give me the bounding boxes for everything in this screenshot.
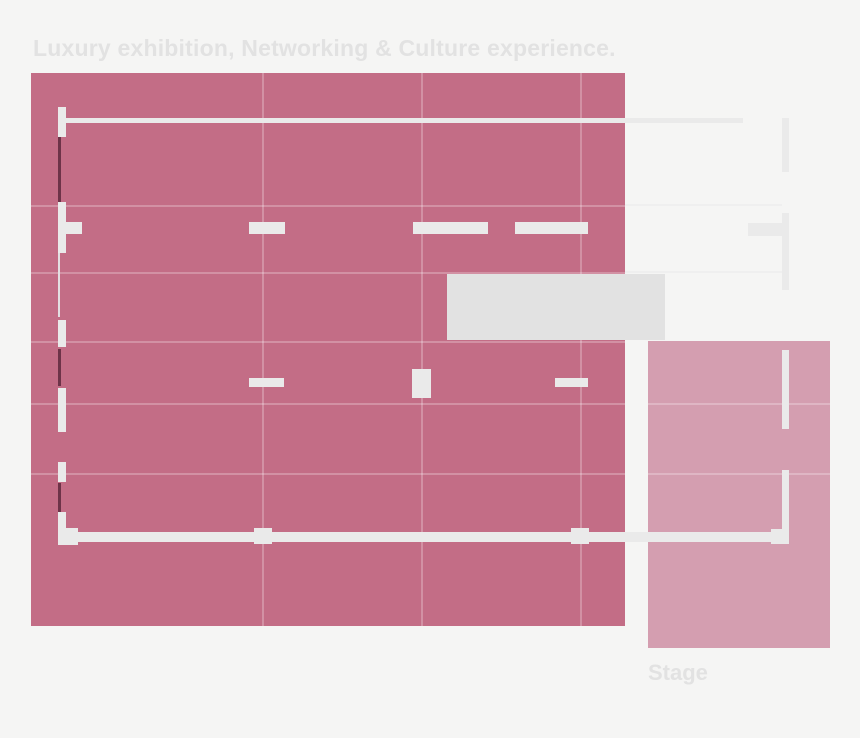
booth-marker (249, 222, 285, 234)
door-marker-dark (58, 137, 61, 202)
stage-zone (648, 341, 830, 648)
grid-extension-line (625, 271, 782, 273)
wall-left-segment (58, 320, 66, 347)
hall-grid-line-horizontal (31, 205, 625, 207)
wall-bottom-nub (571, 528, 589, 544)
stage-grid-line-horizontal (648, 403, 830, 405)
wall-left-opening (58, 253, 60, 317)
booth-marker (515, 222, 588, 234)
booth-marker (413, 222, 488, 234)
wall-top (63, 118, 743, 123)
wall-right-segment (782, 470, 789, 542)
wall-right-stub (748, 223, 782, 236)
door-marker-dark (58, 349, 61, 386)
wall-right-segment (782, 118, 789, 172)
reception-block (447, 274, 665, 340)
grid-extension-line (625, 204, 782, 206)
hall-grid-line-vertical (421, 73, 423, 626)
booth-marker (555, 378, 588, 387)
hall-grid-line-horizontal (31, 403, 625, 405)
wall-right-segment (782, 213, 789, 290)
hall-grid-line-horizontal (31, 473, 625, 475)
booth-marker (249, 378, 284, 387)
exhibition-hall-zone (31, 73, 625, 626)
stage-grid-line-horizontal (648, 473, 830, 475)
wall-left-segment (58, 388, 66, 432)
pillar-block (412, 369, 431, 398)
floorplan-canvas: Luxury exhibition, Networking & Culture … (0, 0, 860, 738)
wall-right-segment (782, 350, 789, 429)
page-title: Luxury exhibition, Networking & Culture … (33, 35, 616, 62)
wall-left-segment (58, 107, 66, 137)
wall-left-stub (64, 222, 82, 234)
wall-bottom-nub (254, 528, 272, 544)
stage-label: Stage (648, 660, 708, 686)
wall-bottom (58, 532, 789, 542)
hall-grid-line-horizontal (31, 341, 625, 343)
door-marker-dark (58, 483, 61, 512)
wall-left-segment (58, 462, 66, 482)
